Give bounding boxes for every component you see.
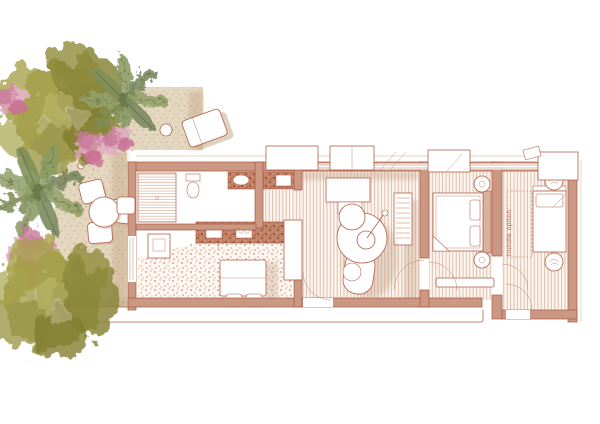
planter — [545, 253, 563, 271]
pillow — [470, 226, 480, 246]
toilet — [187, 182, 199, 198]
ground-light — [78, 163, 84, 169]
wall-bedroom-left — [420, 162, 429, 258]
coffee-table — [357, 231, 375, 249]
shower — [138, 173, 176, 222]
wall-trundle-left — [492, 162, 502, 256]
floor-plan-rendering: trundle option — [0, 0, 600, 424]
wall-right — [568, 162, 577, 322]
bougainvillea-icon — [0, 84, 28, 116]
wall-bathroom — [255, 162, 263, 228]
nightstand-lamp — [474, 176, 490, 192]
tv-console — [326, 178, 370, 202]
wall-trundle-stub — [492, 295, 502, 319]
toilet-tank — [186, 174, 200, 181]
outdoor-fixture — [117, 197, 135, 214]
closet — [266, 146, 318, 170]
oven — [148, 234, 170, 258]
louvered-unit — [394, 193, 412, 245]
wall-bath-kitchen — [136, 224, 256, 230]
side-table — [160, 124, 172, 136]
headboard — [483, 191, 491, 253]
wall-bedroom-left-stub — [420, 290, 429, 307]
closet — [538, 152, 578, 180]
pillow — [470, 200, 480, 220]
nightstand-lamp — [474, 252, 490, 268]
wall-living-left — [294, 280, 302, 307]
sideboard — [284, 220, 302, 280]
trundle-option-label: trundle option — [506, 210, 513, 256]
pillow — [536, 194, 563, 207]
bedroom-bench — [436, 278, 494, 287]
